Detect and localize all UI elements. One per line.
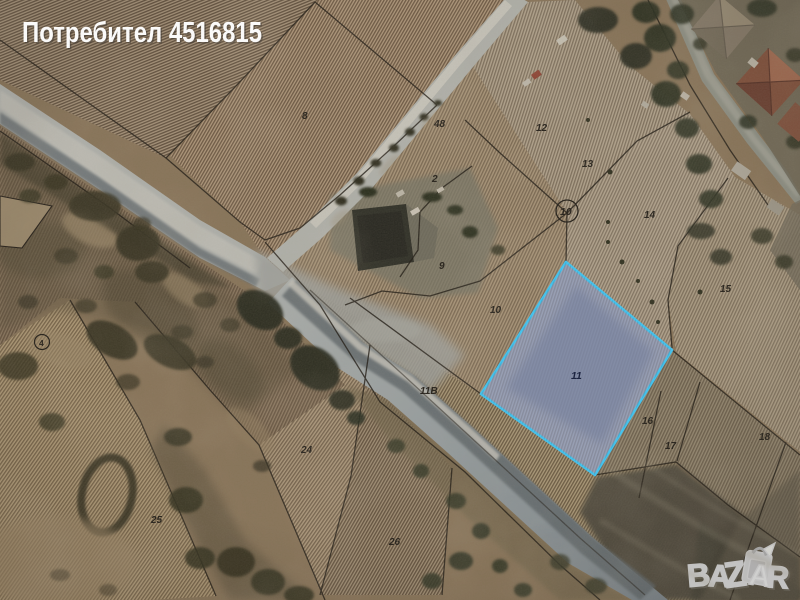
svg-text:Потребител 4516815: Потребител 4516815	[22, 17, 262, 49]
svg-text:11: 11	[571, 370, 582, 382]
